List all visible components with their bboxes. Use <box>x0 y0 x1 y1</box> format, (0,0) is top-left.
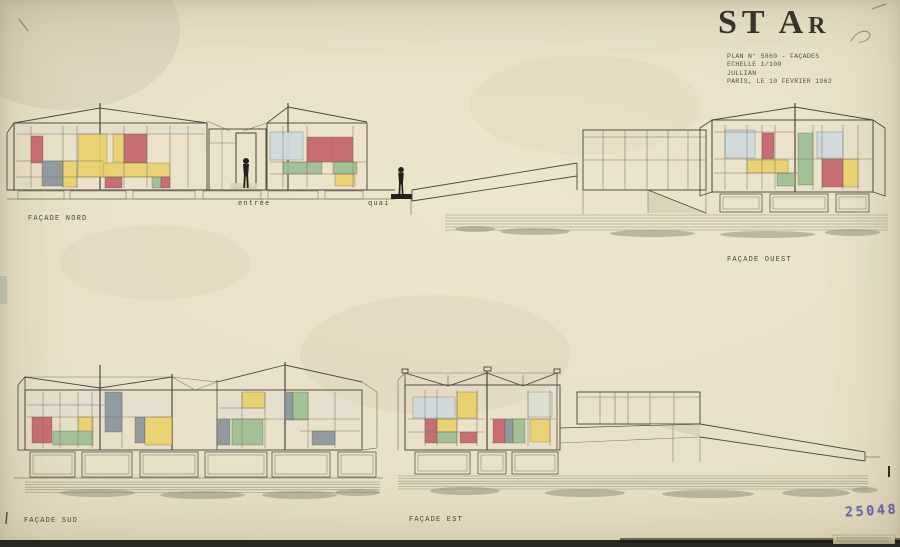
facade-nord-label: FAÇADE NORD <box>28 215 87 223</box>
facade-est-label: FAÇADE EST <box>409 516 463 524</box>
quai-label: quai <box>368 200 390 208</box>
facade-ouest-label: FAÇADE OUEST <box>727 256 792 264</box>
entree-label: entrée <box>238 200 270 208</box>
drawing-sheet: STAr PLAN N° 5860 - FAÇADES ECHELLE 1/10… <box>0 0 900 547</box>
sheet-title: STAr <box>718 4 830 42</box>
title-block-author-line: JULLIAN <box>727 70 756 77</box>
title-block-scale-line: ECHELLE 1/100 <box>727 61 782 68</box>
sheet-title-ar: Ar <box>779 4 831 41</box>
facade-sud-label: FAÇADE SUD <box>24 517 78 525</box>
title-block-date-line: PARIS, LE 10 FEVRIER 1962 <box>727 78 832 85</box>
sheet-title-st: ST <box>718 4 770 41</box>
archive-number-stamp: 25048 <box>845 501 899 520</box>
title-block-plan-line: PLAN N° 5860 - FAÇADES <box>727 53 819 60</box>
